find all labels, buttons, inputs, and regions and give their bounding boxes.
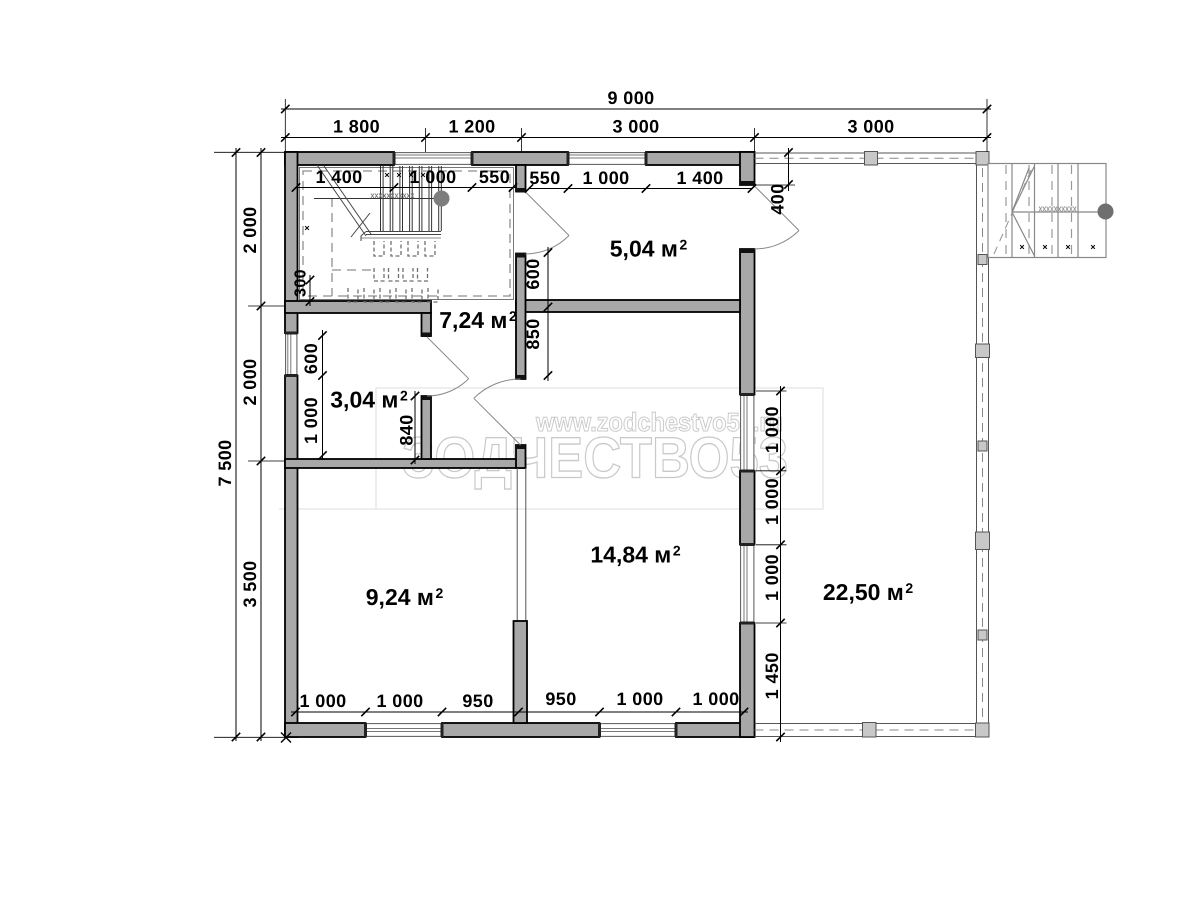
svg-text:1 000: 1 000 <box>762 478 782 525</box>
svg-text:1 400: 1 400 <box>676 168 723 188</box>
svg-text:×: × <box>1065 242 1070 252</box>
svg-text:9 000: 9 000 <box>607 88 654 108</box>
svg-text:1 000: 1 000 <box>692 689 739 709</box>
svg-text:22,50 м2: 22,50 м2 <box>823 579 913 605</box>
svg-text:×: × <box>384 170 389 180</box>
svg-text:×: × <box>1019 242 1024 252</box>
svg-text:1 000: 1 000 <box>762 554 782 601</box>
svg-text:950: 950 <box>545 689 576 709</box>
svg-text:9,24 м2: 9,24 м2 <box>366 584 444 610</box>
svg-text:300: 300 <box>293 269 310 297</box>
svg-text:1 000: 1 000 <box>616 689 663 709</box>
svg-text:1 000: 1 000 <box>299 691 346 711</box>
svg-text:5,04 м2: 5,04 м2 <box>610 236 688 262</box>
svg-text:2 000: 2 000 <box>240 206 260 253</box>
svg-text:600: 600 <box>301 343 321 374</box>
svg-text:1 800: 1 800 <box>333 117 380 137</box>
svg-text:550: 550 <box>479 167 510 187</box>
svg-text:3 500: 3 500 <box>240 560 260 607</box>
svg-text:1 400: 1 400 <box>315 167 362 187</box>
svg-text:7 500: 7 500 <box>215 439 235 486</box>
svg-text:550: 550 <box>529 168 560 188</box>
svg-text:3 000: 3 000 <box>612 117 659 137</box>
svg-text:1 000: 1 000 <box>582 168 629 188</box>
svg-text:14,84 м2: 14,84 м2 <box>590 542 680 568</box>
svg-text:1 200: 1 200 <box>448 117 495 137</box>
svg-text:×: × <box>1042 242 1047 252</box>
svg-text:1 000: 1 000 <box>762 406 782 453</box>
svg-text:3,04 м2: 3,04 м2 <box>330 387 408 413</box>
svg-text:400: 400 <box>768 183 788 214</box>
svg-text:7,24 м2: 7,24 м2 <box>439 307 517 333</box>
svg-text:600: 600 <box>523 258 543 289</box>
svg-text:1 000: 1 000 <box>301 397 321 444</box>
svg-text:×: × <box>1090 242 1095 252</box>
svg-text:ЗОДЧЕСТВО53: ЗОДЧЕСТВО53 <box>402 426 788 491</box>
svg-text:840: 840 <box>397 414 417 445</box>
svg-text:1 000: 1 000 <box>409 167 456 187</box>
svg-text:×: × <box>304 223 309 233</box>
svg-text:×: × <box>396 170 401 180</box>
svg-text:950: 950 <box>462 691 493 711</box>
svg-text:1 000: 1 000 <box>376 691 423 711</box>
svg-text:3 000: 3 000 <box>847 117 894 137</box>
svg-text:850: 850 <box>523 318 543 349</box>
svg-text:1 450: 1 450 <box>762 652 782 699</box>
svg-text:2 000: 2 000 <box>240 358 260 405</box>
